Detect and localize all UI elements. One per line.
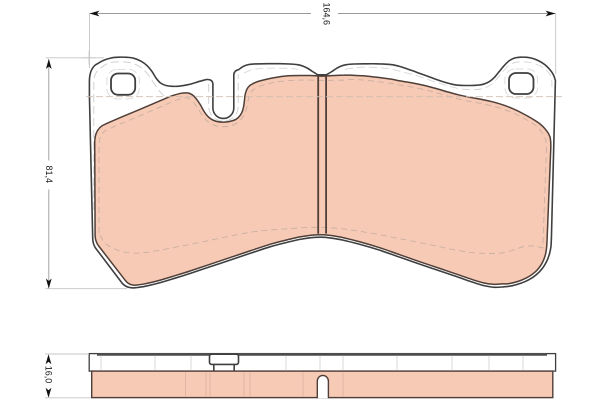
svg-text:81,4: 81,4 [44,166,54,184]
svg-text:164,6: 164,6 [321,3,331,26]
svg-text:16,0: 16,0 [44,366,54,384]
